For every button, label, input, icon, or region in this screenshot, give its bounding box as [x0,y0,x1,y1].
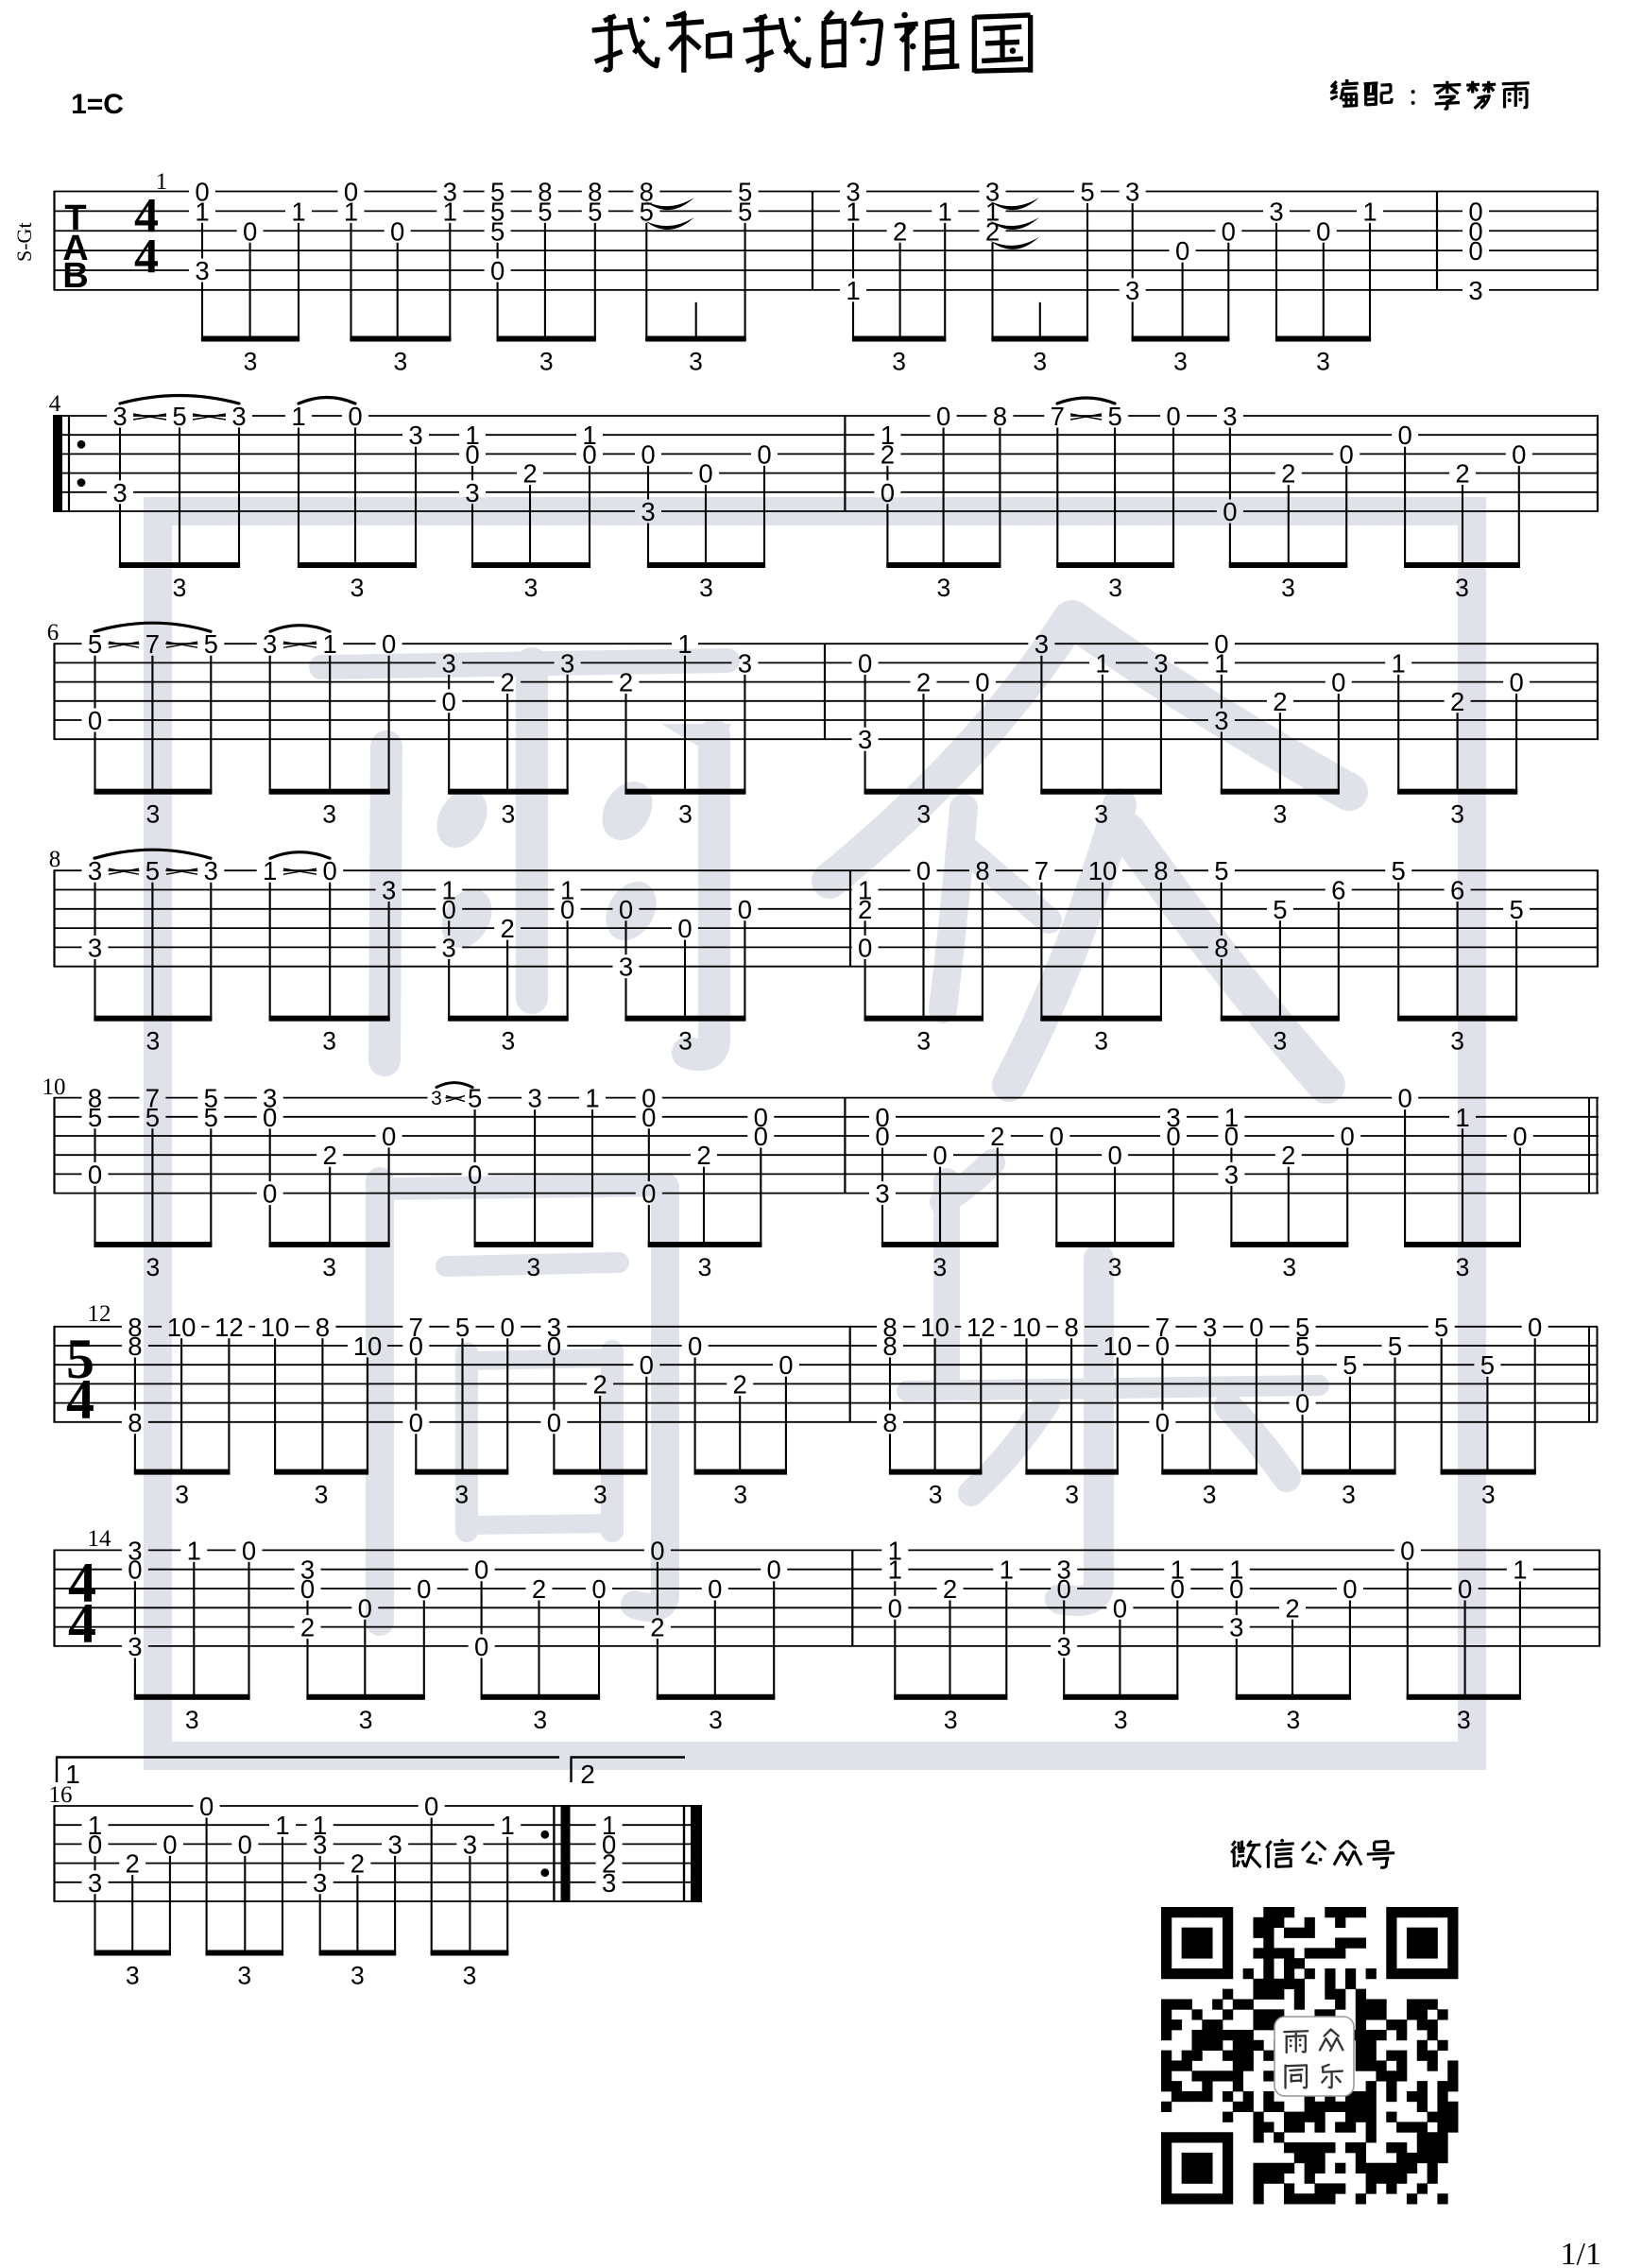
svg-text:1: 1 [291,402,305,431]
svg-text:3: 3 [678,1027,693,1056]
svg-text:0: 0 [858,648,872,678]
svg-text:3: 3 [382,876,396,905]
svg-text:0: 0 [547,1408,561,1437]
svg-text:0: 0 [1458,1574,1472,1604]
svg-text:12: 12 [214,1313,244,1342]
svg-text:8: 8 [316,1313,330,1342]
svg-text:3: 3 [1286,1706,1300,1734]
svg-text:0: 0 [582,439,596,469]
svg-text:3: 3 [126,1962,140,1990]
svg-text:2: 2 [522,459,537,489]
svg-text:3: 3 [1125,276,1139,305]
svg-text:5: 5 [145,856,160,885]
svg-text:2: 2 [990,1122,1004,1151]
svg-text:8: 8 [1064,1313,1078,1342]
svg-text:5: 5 [1434,1313,1448,1342]
svg-text:0: 0 [263,1179,277,1209]
svg-text:0: 0 [975,668,989,697]
svg-text:0: 0 [1223,497,1237,526]
svg-text:0: 0 [1155,1332,1170,1361]
svg-text:0: 0 [767,1555,781,1585]
svg-text:0: 0 [1166,402,1180,431]
svg-text:6: 6 [1450,876,1464,905]
svg-text:3: 3 [263,629,277,659]
svg-text:3: 3 [738,648,752,678]
svg-text:3: 3 [1035,629,1049,659]
svg-text:5: 5 [88,629,102,659]
svg-text:8: 8 [1214,933,1228,962]
svg-text:0: 0 [1155,1408,1170,1437]
svg-text:3: 3 [112,402,127,431]
svg-text:0: 0 [888,1593,902,1623]
svg-text:5: 5 [738,197,752,226]
svg-text:0: 0 [409,1332,423,1361]
svg-text:3: 3 [351,574,365,602]
svg-text:5: 5 [538,197,552,226]
svg-text:0: 0 [474,1632,488,1661]
svg-text:2: 2 [696,1141,710,1170]
svg-text:3: 3 [185,1706,199,1734]
svg-text:1: 1 [323,629,337,659]
svg-text:1: 1 [275,1811,289,1840]
svg-text:0: 0 [875,1122,889,1151]
svg-text:2: 2 [500,914,514,943]
svg-text:0: 0 [916,856,931,885]
svg-text:2: 2 [619,668,633,697]
svg-text:3: 3 [1108,1253,1122,1281]
svg-text:3: 3 [524,574,539,602]
svg-text:3: 3 [593,1481,607,1509]
svg-text:7: 7 [145,629,160,659]
svg-text:8: 8 [1154,856,1168,885]
svg-text:2: 2 [985,216,1000,246]
svg-text:1: 1 [1000,1555,1014,1585]
svg-text:10: 10 [261,1313,290,1342]
svg-text:3: 3 [1316,348,1330,376]
svg-text:3: 3 [892,348,906,376]
svg-text:1: 1 [443,197,457,226]
svg-text:3: 3 [442,933,456,962]
svg-text:5: 5 [1388,1332,1402,1361]
svg-text:0: 0 [698,459,712,489]
svg-text:0: 0 [1468,236,1482,266]
svg-text:0: 0 [490,256,505,285]
svg-text:3: 3 [502,800,516,829]
svg-text:0: 0 [1175,236,1189,266]
svg-text:3: 3 [1468,276,1482,305]
svg-text:2: 2 [1281,459,1295,489]
svg-text:1: 1 [1513,1555,1527,1585]
svg-text:3: 3 [463,1962,477,1990]
svg-text:0: 0 [300,1574,315,1604]
svg-text:10: 10 [1012,1313,1041,1342]
svg-text:0: 0 [1171,1574,1185,1604]
svg-text:2: 2 [650,1613,664,1642]
svg-text:2: 2 [580,1760,595,1789]
svg-text:0: 0 [1397,421,1411,450]
svg-text:0: 0 [708,1574,722,1604]
svg-text:3: 3 [195,256,209,285]
svg-text:10: 10 [1103,1332,1133,1361]
svg-text:3: 3 [1269,197,1283,226]
svg-text:1: 1 [65,1760,80,1789]
svg-text:5: 5 [88,1103,102,1132]
svg-text:4: 4 [49,391,61,417]
svg-text:0: 0 [547,1332,561,1361]
svg-text:1/1: 1/1 [1561,2237,1601,2268]
svg-text:3: 3 [1108,574,1122,602]
svg-text:0: 0 [1316,216,1330,246]
svg-text:8: 8 [49,847,61,872]
svg-text:14: 14 [88,1526,112,1552]
svg-text:5: 5 [455,1313,470,1342]
svg-text:3: 3 [944,1706,958,1734]
svg-text:4: 4 [66,1368,94,1431]
svg-text:3: 3 [527,1084,541,1113]
svg-text:5: 5 [1107,402,1121,431]
svg-text:1: 1 [846,197,860,226]
svg-text:0: 0 [1397,1084,1411,1113]
svg-text:2: 2 [126,1849,140,1879]
svg-text:3: 3 [526,1253,540,1281]
svg-text:0: 0 [1222,216,1236,246]
svg-text:3: 3 [1154,648,1168,678]
svg-text:5: 5 [172,402,186,431]
svg-text:2: 2 [1281,1141,1295,1170]
svg-text:5: 5 [490,216,505,246]
svg-text:3: 3 [1094,1027,1108,1056]
svg-text:3: 3 [929,1481,943,1509]
svg-text:3: 3 [875,1179,889,1209]
svg-text:0: 0 [754,1122,768,1151]
svg-text:3: 3 [698,1253,712,1281]
svg-text:3: 3 [313,1830,327,1859]
svg-text:0: 0 [738,895,752,924]
svg-text:3: 3 [359,1706,373,1734]
svg-text:3: 3 [916,1027,931,1056]
svg-text:3: 3 [88,933,102,962]
svg-text:2: 2 [351,1849,365,1879]
svg-text:B: B [62,256,88,296]
svg-text:1: 1 [187,1536,201,1565]
svg-text:12: 12 [966,1313,996,1342]
svg-text:3: 3 [1457,1706,1471,1734]
svg-text:5: 5 [1080,178,1094,207]
svg-text:3: 3 [175,1481,189,1509]
svg-text:0: 0 [199,1792,214,1821]
svg-text:0: 0 [1513,1122,1527,1151]
svg-text:2: 2 [893,216,907,246]
svg-text:3: 3 [387,1830,402,1859]
svg-text:10: 10 [1088,856,1118,885]
svg-text:8: 8 [993,402,1007,431]
svg-text:0: 0 [1224,1122,1239,1151]
svg-text:0: 0 [465,439,479,469]
svg-text:3: 3 [709,1706,723,1734]
svg-text:1: 1 [888,1555,902,1585]
svg-text:2: 2 [1455,459,1469,489]
svg-text:1: 1 [344,197,358,226]
svg-text:0: 0 [348,402,362,431]
svg-text:5: 5 [588,197,602,226]
svg-text:2: 2 [858,895,872,924]
svg-text:3: 3 [1065,1481,1079,1509]
svg-text:10: 10 [920,1313,949,1342]
svg-text:0: 0 [1057,1574,1071,1604]
svg-text:3: 3 [1224,1160,1239,1189]
svg-text:0: 0 [1050,1122,1064,1151]
svg-text:3: 3 [1450,800,1464,829]
svg-text:3: 3 [454,1481,469,1509]
svg-text:3: 3 [204,856,218,885]
svg-text:3: 3 [431,1088,442,1109]
svg-text:0: 0 [323,856,337,885]
svg-text:2: 2 [500,668,514,697]
svg-text:5: 5 [468,1084,482,1113]
svg-text:0: 0 [243,216,257,246]
svg-text:S-Gt: S-Gt [12,222,36,262]
svg-text:1: 1 [1214,648,1228,678]
svg-text:8: 8 [128,1408,142,1437]
svg-text:0: 0 [468,1160,482,1189]
svg-text:2: 2 [733,1369,747,1399]
svg-text:0: 0 [442,895,456,924]
svg-text:3: 3 [1125,178,1139,207]
svg-text:0: 0 [382,1122,396,1151]
svg-text:1: 1 [677,629,692,659]
svg-text:2: 2 [300,1613,315,1642]
svg-text:5: 5 [1214,856,1228,885]
svg-text:3: 3 [351,1962,365,1990]
svg-text:1: 1 [195,197,209,226]
svg-text:3: 3 [1455,574,1469,602]
svg-text:0: 0 [757,439,771,469]
svg-text:1: 1 [585,1084,599,1113]
svg-text:1: 1 [1362,197,1377,226]
svg-text:7: 7 [1035,856,1049,885]
svg-text:3: 3 [313,1868,327,1898]
svg-text:2: 2 [532,1574,546,1604]
svg-text:3: 3 [394,348,408,376]
svg-text:3: 3 [112,478,127,507]
svg-text:3: 3 [322,1253,336,1281]
svg-text:3: 3 [1203,1481,1217,1509]
svg-text:2: 2 [1285,1593,1299,1623]
svg-text:10: 10 [43,1074,66,1100]
svg-text:3: 3 [1223,402,1237,431]
svg-text:3: 3 [408,421,422,450]
svg-text:5: 5 [1273,895,1287,924]
svg-text:3: 3 [231,402,246,431]
svg-text:3: 3 [465,478,479,507]
svg-text:0: 0 [238,1830,252,1859]
svg-text:3: 3 [146,1027,161,1056]
svg-text:5: 5 [204,1103,218,1132]
svg-text:4: 4 [68,1592,96,1655]
svg-text:0: 0 [641,439,655,469]
svg-text:0: 0 [1528,1313,1542,1342]
svg-text:3: 3 [858,725,872,754]
svg-text:3: 3 [1282,1253,1296,1281]
svg-text:3: 3 [315,1481,329,1509]
svg-text:0: 0 [1166,1122,1180,1151]
svg-text:3: 3 [1114,1706,1128,1734]
svg-text:0: 0 [1229,1574,1243,1604]
svg-text:0: 0 [1340,439,1354,469]
svg-text:3: 3 [678,800,693,829]
svg-text:0: 0 [417,1574,431,1604]
svg-text:3: 3 [1203,1313,1217,1342]
svg-text:0: 0 [88,1160,102,1189]
svg-text:0: 0 [1295,1389,1309,1418]
svg-text:0: 0 [88,1830,102,1859]
svg-text:0: 0 [358,1593,372,1623]
svg-text:3: 3 [322,1027,336,1056]
svg-text:0: 0 [1107,1141,1121,1170]
svg-text:3: 3 [442,648,456,678]
svg-text:0: 0 [1113,1593,1127,1623]
svg-text:3: 3 [322,800,336,829]
svg-text:3: 3 [539,348,554,376]
svg-text:1: 1 [1392,648,1406,678]
svg-text:4: 4 [134,230,159,283]
svg-text:3: 3 [1057,1632,1071,1661]
svg-text:0: 0 [881,478,895,507]
svg-text:2: 2 [1450,687,1464,716]
svg-text:0: 0 [382,629,396,659]
svg-text:5: 5 [204,629,218,659]
svg-text:2: 2 [916,668,931,697]
svg-text:2: 2 [592,1369,607,1399]
svg-text:3: 3 [916,800,931,829]
svg-text:5: 5 [1480,1350,1495,1380]
svg-text:3: 3 [88,856,102,885]
svg-text:0: 0 [1343,1574,1357,1604]
svg-text:3: 3 [619,953,633,982]
svg-text:0: 0 [162,1830,177,1859]
svg-text:0: 0 [88,706,102,735]
svg-text:3: 3 [533,1706,547,1734]
svg-text:0: 0 [442,687,456,716]
svg-text:3: 3 [1214,706,1228,735]
svg-text:3: 3 [733,1481,747,1509]
svg-text:2: 2 [881,439,895,469]
svg-text:0: 0 [778,1350,793,1380]
svg-text:3: 3 [502,1027,516,1056]
svg-text:0: 0 [1249,1313,1263,1342]
svg-text:1=C: 1=C [71,89,124,120]
svg-text:0: 0 [936,402,950,431]
svg-text:1: 1 [1095,648,1109,678]
svg-text:6: 6 [1331,876,1345,905]
svg-text:3: 3 [237,1962,251,1990]
svg-text:1: 1 [156,169,168,195]
svg-text:3: 3 [933,1253,948,1281]
svg-text:0: 0 [560,895,574,924]
svg-text:0: 0 [591,1574,606,1604]
svg-text:3: 3 [1281,574,1295,602]
svg-text:1: 1 [1455,1103,1469,1132]
svg-text:0: 0 [1509,668,1523,697]
svg-text:0: 0 [677,914,692,943]
svg-text:5: 5 [1343,1350,1357,1380]
svg-text:3: 3 [1229,1613,1243,1642]
svg-text:3: 3 [1342,1481,1356,1509]
svg-text:3: 3 [1481,1481,1496,1509]
svg-text:2: 2 [943,1574,957,1604]
svg-text:3: 3 [1450,1027,1464,1056]
svg-text:2: 2 [323,1141,337,1170]
svg-text:3: 3 [128,1632,142,1661]
svg-text:8: 8 [882,1332,897,1361]
svg-text:8: 8 [882,1408,897,1437]
svg-text:3: 3 [1173,348,1188,376]
svg-text:3: 3 [146,800,161,829]
svg-text:6: 6 [47,620,60,645]
svg-text:8: 8 [975,856,989,885]
svg-text:12: 12 [88,1301,111,1327]
svg-text:0: 0 [650,1536,664,1565]
svg-text:1: 1 [501,1811,515,1840]
svg-text:3: 3 [602,1868,616,1898]
svg-text:0: 0 [932,1141,947,1170]
svg-text:5: 5 [1509,895,1523,924]
svg-text:3: 3 [173,574,187,602]
svg-text:0: 0 [640,1350,654,1380]
svg-text:0: 0 [1341,1122,1355,1151]
svg-text:0: 0 [641,1103,656,1132]
svg-text:0: 0 [1331,668,1345,697]
svg-text:0: 0 [1400,1536,1414,1565]
svg-text:5: 5 [1295,1332,1309,1361]
svg-text:3: 3 [1456,1253,1470,1281]
svg-text:0: 0 [858,933,872,962]
svg-text:10: 10 [353,1332,383,1361]
svg-text:5: 5 [145,1103,160,1132]
svg-text:0: 0 [242,1536,256,1565]
svg-text:1: 1 [846,276,860,305]
svg-text:3: 3 [560,648,574,678]
svg-text:0: 0 [128,1555,142,1585]
svg-text:1: 1 [263,856,277,885]
svg-text:0: 0 [641,1179,656,1209]
svg-text:3: 3 [689,348,703,376]
svg-text:3: 3 [641,497,655,526]
svg-text:0: 0 [1512,439,1526,469]
svg-text:0: 0 [619,895,633,924]
svg-text:3: 3 [1273,1027,1287,1056]
svg-text:0: 0 [501,1313,515,1342]
svg-text:0: 0 [474,1555,488,1585]
svg-text:3: 3 [1273,800,1287,829]
svg-text:7: 7 [1051,402,1065,431]
svg-text:0: 0 [688,1332,702,1361]
svg-text:3: 3 [1033,348,1047,376]
svg-text:2: 2 [1273,687,1287,716]
svg-text:5: 5 [1392,856,1406,885]
svg-text:3: 3 [699,574,713,602]
svg-text:0: 0 [263,1103,277,1132]
svg-text:0: 0 [424,1792,438,1821]
svg-text:0: 0 [390,216,404,246]
svg-text:10: 10 [167,1313,197,1342]
svg-text:3: 3 [88,1868,102,1898]
svg-text:1: 1 [291,197,305,226]
svg-text:1: 1 [938,197,952,226]
svg-text:3: 3 [146,1253,161,1281]
svg-text:3: 3 [937,574,951,602]
svg-text:3: 3 [244,348,258,376]
